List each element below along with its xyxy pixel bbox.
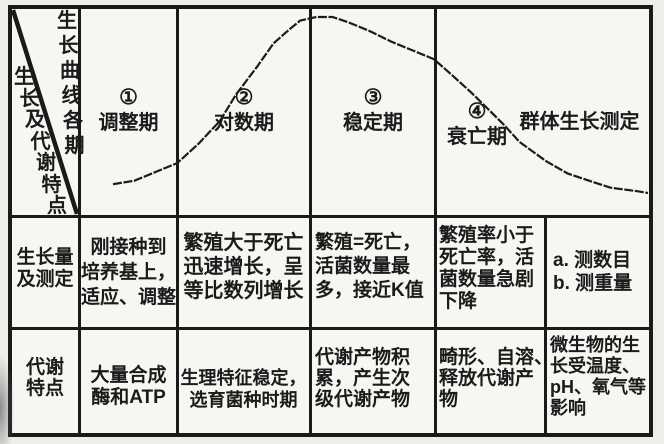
cell-line: 繁殖大于死亡 bbox=[179, 231, 308, 255]
phase-4-number: ④ bbox=[439, 101, 515, 122]
cell-line: 大量合成 bbox=[81, 365, 176, 387]
corner-text-curve-phases: 线 bbox=[61, 86, 83, 106]
phase-cell-3: ③ 稳定期 bbox=[312, 87, 434, 133]
cell-line: 微生物的生 bbox=[550, 335, 648, 356]
row-header-metabolism: 代谢 特点 bbox=[12, 357, 78, 399]
cell-line: 代谢产物积 bbox=[315, 347, 433, 368]
cell-line: 菌数量急剧 bbox=[439, 269, 543, 291]
corner-text-growth-metabolism: 代 bbox=[30, 132, 52, 152]
phase-4-name: 衰亡期 bbox=[439, 127, 515, 147]
cell-line: a. 测数目 bbox=[553, 249, 648, 272]
phase-2-name: 对数期 bbox=[179, 113, 309, 133]
row-header-line: 生长量 bbox=[12, 247, 78, 269]
phase-3-number: ③ bbox=[312, 87, 434, 108]
phase-2-number: ② bbox=[179, 87, 309, 108]
cell-line: 死亡率，活 bbox=[439, 247, 543, 269]
grid-vline-3 bbox=[309, 9, 312, 433]
row-header-line: 代谢 bbox=[12, 357, 78, 378]
cell-line: 下降 bbox=[439, 291, 543, 313]
scan-smudge bbox=[0, 356, 14, 444]
row-header-line: 特点 bbox=[12, 378, 78, 399]
grid-hline-2 bbox=[12, 327, 649, 330]
cell-line: 多，接近K值 bbox=[315, 279, 433, 303]
cell-line: 畸形、自溶、 bbox=[439, 347, 543, 368]
cell-log-growth: 繁殖大于死亡 迅速增长，呈 等比数列增长 bbox=[179, 231, 308, 303]
grid-vline-4 bbox=[434, 9, 437, 433]
row-header-line: 及测定 bbox=[12, 269, 78, 291]
corner-cell: 生长曲线各期生长及代谢特点 bbox=[12, 9, 78, 215]
cell-line: 适应、调整 bbox=[81, 285, 176, 310]
cell-line: 活菌数量最 bbox=[315, 255, 433, 279]
cell-line: 繁殖率小于 bbox=[439, 225, 543, 247]
cell-line: 选育菌种时期 bbox=[179, 389, 308, 411]
grid-hline-1 bbox=[12, 215, 649, 218]
group-growth-measure-label: 群体生长测定 bbox=[510, 112, 649, 132]
corner-text-growth-metabolism: 及 bbox=[24, 110, 46, 130]
cell-stationary-growth: 繁殖=死亡， 活菌数量最 多，接近K值 bbox=[315, 231, 433, 303]
cell-line: 物 bbox=[439, 389, 543, 410]
cell-lag-growth: 刚接种到 培养基上， 适应、调整 bbox=[81, 235, 176, 310]
scanned-growth-table-page: { "table": { "corner": { "top_right_text… bbox=[0, 0, 664, 444]
corner-text-growth-metabolism: 点 bbox=[46, 196, 68, 216]
cell-line: 刚接种到 bbox=[81, 235, 176, 260]
corner-text-curve-phases: 生 bbox=[56, 11, 78, 31]
phase-1-name: 调整期 bbox=[81, 113, 176, 133]
cell-line: 培养基上， bbox=[81, 260, 176, 285]
phase-cell-1: ① 调整期 bbox=[81, 87, 176, 133]
corner-text-growth-metabolism: 特 bbox=[41, 175, 63, 195]
cell-line: 累，产生次 bbox=[315, 368, 433, 389]
cell-stationary-metabolism: 代谢产物积 累，产生次 级代谢产物 bbox=[315, 347, 433, 410]
cell-environment-factors: 微生物的生 长受温度、 pH、氧气等 影响 bbox=[550, 335, 648, 419]
cell-line: 等比数列增长 bbox=[179, 279, 308, 303]
cell-line: 释放代谢产 bbox=[439, 368, 543, 389]
phase-cell-2: ② 对数期 bbox=[179, 87, 309, 133]
cell-line: 长受温度、 bbox=[550, 356, 648, 377]
phase-cell-4: ④ 衰亡期 bbox=[439, 101, 515, 147]
cell-decline-growth: 繁殖率小于 死亡率，活 菌数量急剧 下降 bbox=[439, 225, 543, 313]
corner-text-growth-metabolism: 谢 bbox=[35, 153, 57, 173]
cell-line: pH、氧气等 bbox=[550, 377, 648, 398]
cell-line: b. 测重量 bbox=[553, 272, 648, 295]
cell-line: 迅速增长，呈 bbox=[179, 255, 308, 279]
cell-log-metabolism: 生理特征稳定， 选育菌种时期 bbox=[179, 367, 308, 411]
phase-3-name: 稳定期 bbox=[312, 113, 434, 133]
cell-line: 级代谢产物 bbox=[315, 389, 433, 410]
corner-text-curve-phases: 长 bbox=[58, 36, 80, 56]
phase-1-number: ① bbox=[81, 87, 176, 108]
cell-line: 影响 bbox=[550, 398, 648, 419]
corner-text-curve-phases: 曲 bbox=[59, 61, 81, 81]
cell-measure-methods: a. 测数目 b. 测重量 bbox=[553, 249, 648, 295]
cell-line: 酶和ATP bbox=[81, 387, 176, 409]
corner-text-growth-metabolism: 长 bbox=[19, 89, 41, 109]
corner-text-curve-phases: 期 bbox=[64, 136, 86, 156]
cell-decline-metabolism: 畸形、自溶、 释放代谢产 物 bbox=[439, 347, 543, 410]
grid-vline-5 bbox=[544, 215, 547, 433]
corner-text-growth-metabolism: 生 bbox=[13, 67, 35, 87]
cell-line: 生理特征稳定， bbox=[179, 367, 308, 389]
cell-line: 繁殖=死亡， bbox=[315, 231, 433, 255]
row-header-growth: 生长量 及测定 bbox=[12, 247, 78, 291]
cell-lag-metabolism: 大量合成 酶和ATP bbox=[81, 365, 176, 409]
growth-phases-table: 生长曲线各期生长及代谢特点 ① 调整期 ② 对数期 ③ 稳定期 ④ 衰亡期 群体… bbox=[8, 5, 653, 437]
